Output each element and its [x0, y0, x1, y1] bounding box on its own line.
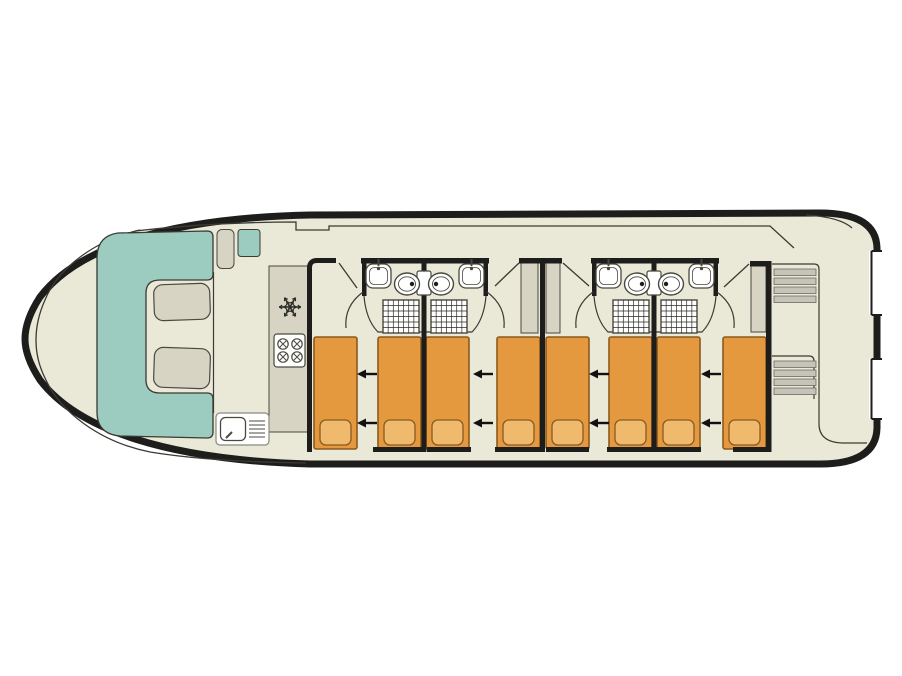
- pillow: [320, 420, 351, 445]
- boat-deck-plan: [0, 0, 902, 676]
- bed-foot-wall: [546, 447, 589, 452]
- bed-foot-wall: [427, 447, 471, 452]
- stair-step: [774, 269, 816, 276]
- pillow: [615, 420, 646, 445]
- salon-table-cushion: [153, 283, 210, 321]
- stair-step: [774, 278, 816, 285]
- wardrobe: [521, 263, 538, 333]
- stair-step: [774, 287, 816, 294]
- bed-foot-wall: [656, 447, 701, 452]
- pillow: [663, 420, 694, 445]
- stair-step: [774, 361, 816, 368]
- side-bench: [238, 230, 260, 257]
- pillow: [552, 420, 583, 445]
- mid-bulkhead-wall: [540, 258, 545, 452]
- pillow: [432, 420, 463, 445]
- stair-step: [774, 296, 816, 303]
- wardrobe: [751, 266, 766, 332]
- pillow: [384, 420, 415, 445]
- wall-segment: [750, 261, 767, 267]
- galley-sink-icon: [221, 418, 246, 441]
- stair-step: [774, 370, 816, 377]
- bed-foot-wall: [733, 447, 767, 452]
- pillow: [503, 420, 534, 445]
- salon-table-cushion: [153, 347, 210, 389]
- bed-foot-wall: [607, 447, 652, 452]
- bed-foot-wall: [373, 447, 425, 452]
- stair-step: [774, 388, 816, 395]
- wardrobe: [546, 263, 560, 333]
- boat-deck-plan-page: [0, 0, 902, 676]
- stern-bulkhead-wall: [766, 261, 772, 452]
- pillow: [729, 420, 760, 445]
- stove-icon: [274, 334, 305, 367]
- stair-step: [774, 379, 816, 386]
- helm-seat: [217, 230, 234, 269]
- bed-foot-wall: [495, 447, 541, 452]
